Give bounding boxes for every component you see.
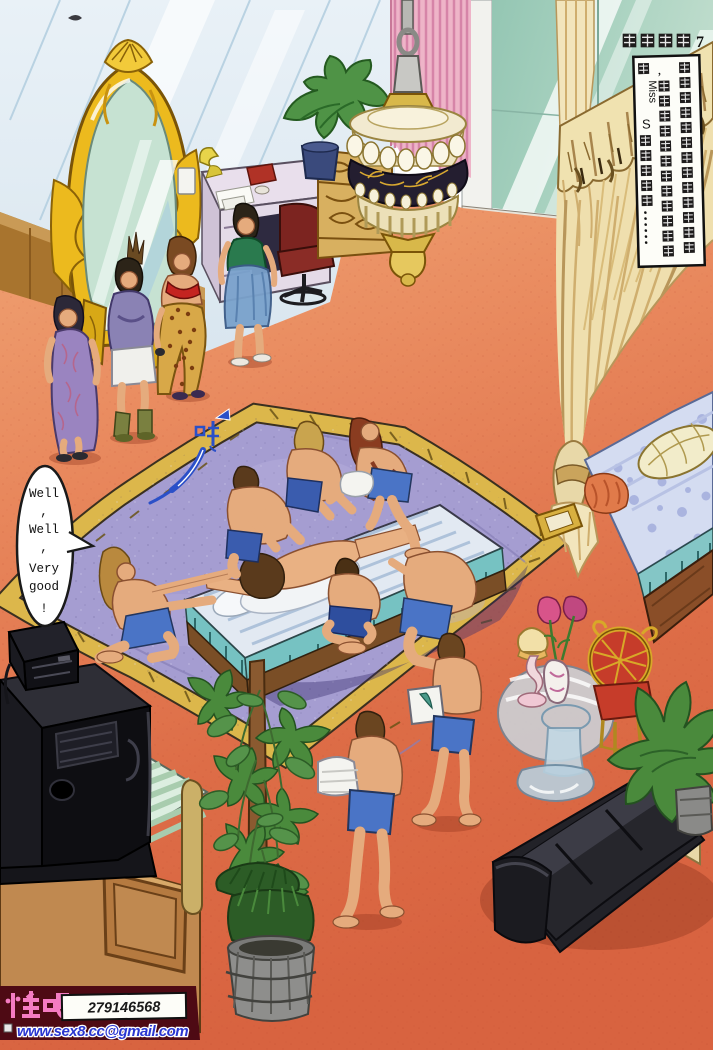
svg-text:Well: Well <box>29 487 59 501</box>
svg-text:279146568: 279146568 <box>87 999 162 1016</box>
svg-text:7: 7 <box>696 34 704 51</box>
svg-text:,: , <box>657 63 661 78</box>
svg-text:Well: Well <box>29 523 59 537</box>
svg-text:,: , <box>40 541 48 555</box>
svg-text:!: ! <box>40 602 48 616</box>
svg-text:,: , <box>40 505 48 519</box>
svg-text:www.sex8.cc@gmail.com: www.sex8.cc@gmail.com <box>17 1023 188 1040</box>
svg-text:good: good <box>29 580 59 594</box>
svg-text:S: S <box>642 116 651 131</box>
svg-text:Very: Very <box>29 562 60 576</box>
svg-text:Miss: Miss <box>646 80 659 103</box>
